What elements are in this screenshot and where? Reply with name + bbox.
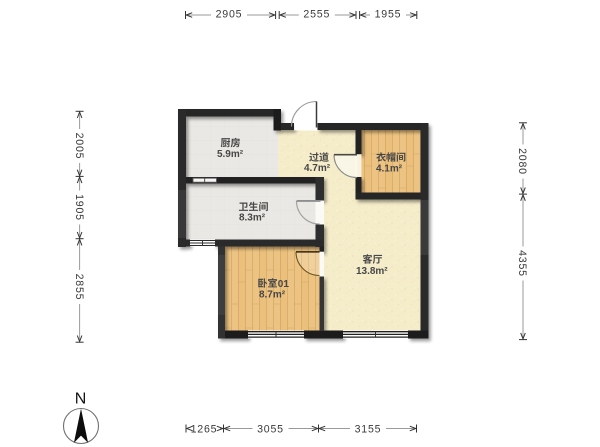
svg-text:01: 01 bbox=[278, 279, 290, 290]
svg-text:4.7m²: 4.7m² bbox=[304, 163, 331, 174]
svg-text:2005: 2005 bbox=[73, 133, 85, 160]
svg-text:3155: 3155 bbox=[355, 423, 382, 435]
svg-text:1905: 1905 bbox=[73, 194, 85, 221]
svg-text:5.9m²: 5.9m² bbox=[217, 149, 244, 160]
svg-text:4355: 4355 bbox=[516, 250, 528, 277]
svg-text:2855: 2855 bbox=[73, 274, 85, 301]
svg-text:2555: 2555 bbox=[303, 9, 330, 21]
svg-text:4.1m²: 4.1m² bbox=[376, 164, 403, 175]
svg-text:8.3m²: 8.3m² bbox=[239, 213, 266, 224]
svg-text:3055: 3055 bbox=[257, 423, 284, 435]
svg-text:2080: 2080 bbox=[516, 148, 528, 175]
svg-text:2905: 2905 bbox=[216, 9, 243, 21]
svg-text:13.8m²: 13.8m² bbox=[356, 266, 388, 277]
svg-text:8.7m²: 8.7m² bbox=[259, 290, 286, 301]
svg-text:1955: 1955 bbox=[375, 9, 402, 21]
svg-text:1265: 1265 bbox=[191, 423, 218, 435]
svg-text:N: N bbox=[75, 391, 87, 408]
